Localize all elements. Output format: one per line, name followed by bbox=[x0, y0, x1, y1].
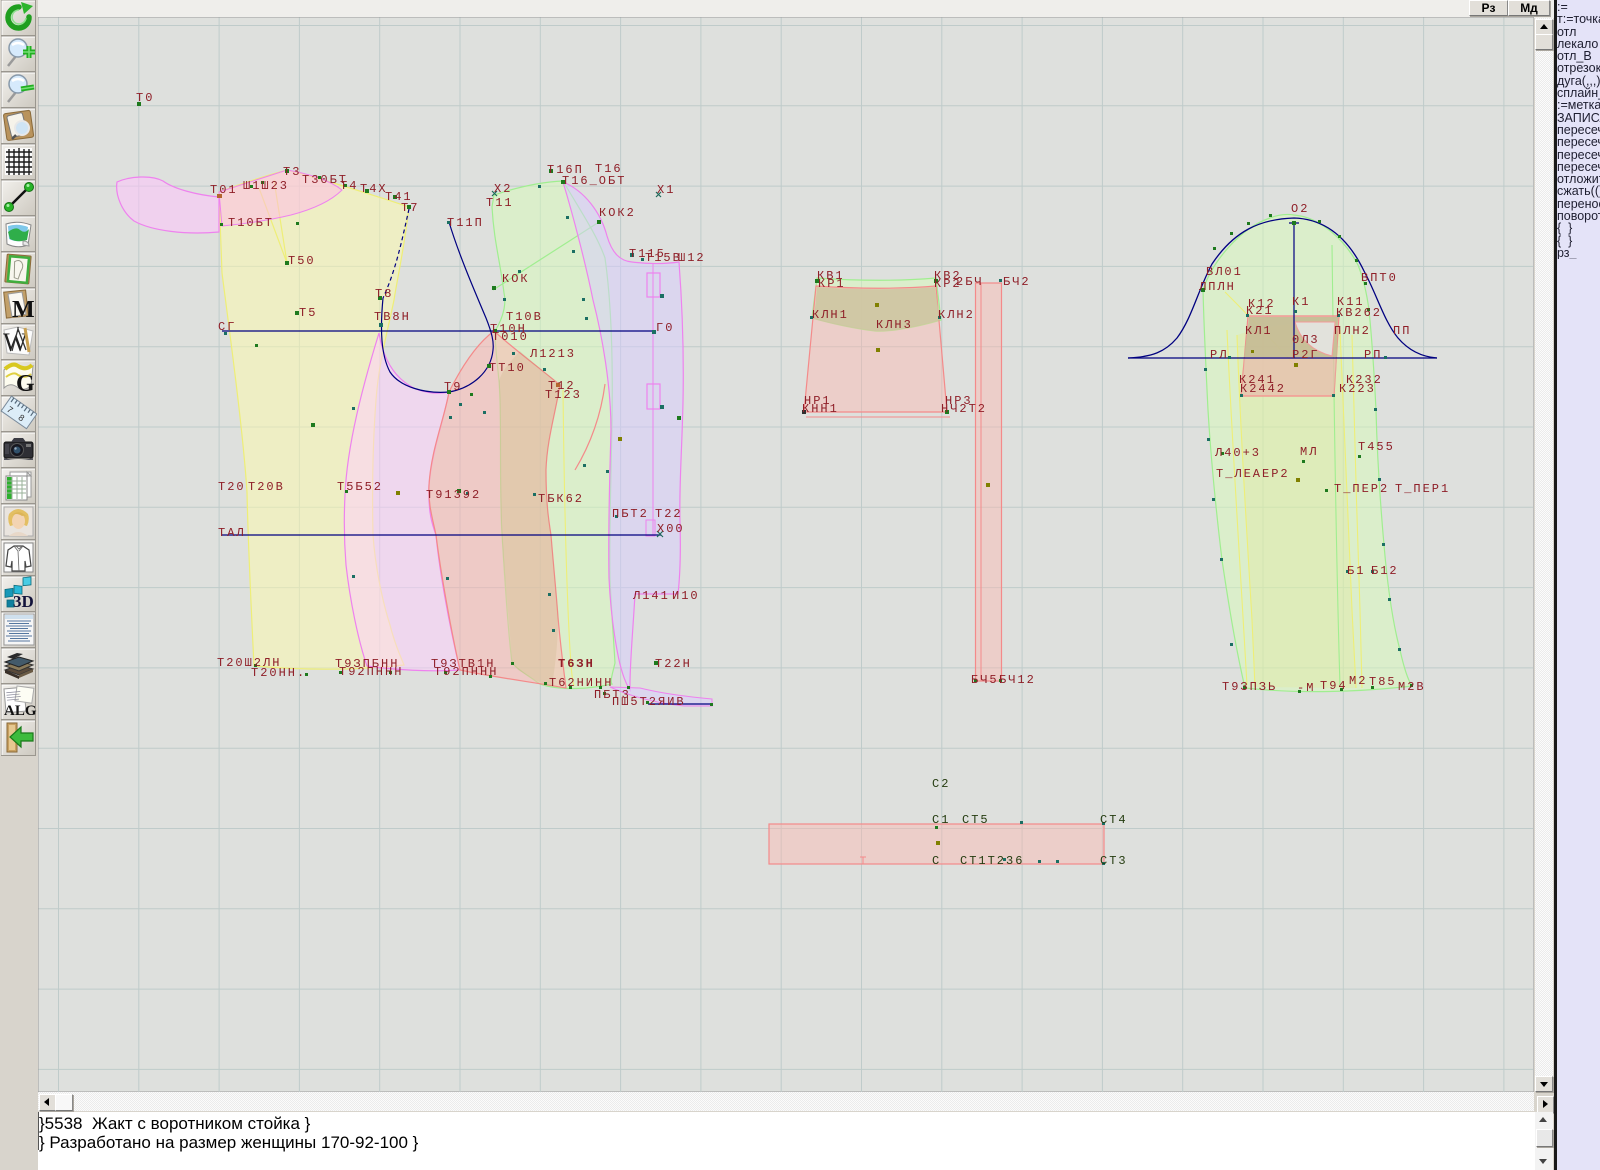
svg-text:Л40+3: Л40+3 bbox=[1214, 446, 1261, 460]
svg-text:Б1: Б1 bbox=[1347, 564, 1365, 578]
svg-text:Т_ПЕР2: Т_ПЕР2 bbox=[1334, 482, 1389, 496]
svg-text:Х00: Х00 bbox=[657, 522, 685, 536]
svg-text:Т92ПННН: Т92ПННН bbox=[339, 665, 403, 679]
svg-text:Т11П: Т11П bbox=[447, 216, 484, 230]
svg-text:О2: О2 bbox=[1291, 202, 1309, 216]
svg-text:Т8: Т8 bbox=[375, 287, 393, 301]
svg-text:Т20В: Т20В bbox=[248, 480, 285, 494]
svg-text:К2442: К2442 bbox=[1240, 382, 1286, 396]
svg-text:М2: М2 bbox=[1349, 674, 1367, 688]
svg-text:КЛ1: КЛ1 bbox=[1245, 324, 1273, 338]
svg-text:Т6ЗН: Т6ЗН bbox=[558, 657, 595, 671]
svg-text:Т11: Т11 bbox=[486, 196, 514, 210]
svg-text:ПБТ2: ПБТ2 bbox=[612, 507, 649, 521]
svg-text:Т7: Т7 bbox=[401, 201, 419, 215]
svg-text:К21: К21 bbox=[1246, 304, 1274, 318]
svg-text:МЛ: МЛ bbox=[1300, 445, 1318, 459]
svg-text:Т010: Т010 bbox=[492, 330, 529, 344]
svg-text:КЛН2: КЛН2 bbox=[938, 308, 975, 322]
svg-text:Л1213: Л1213 bbox=[529, 347, 576, 361]
svg-text:КЛН3: КЛН3 bbox=[876, 318, 913, 332]
svg-text:Т01: Т01 bbox=[210, 183, 238, 197]
svg-text:С: С bbox=[932, 854, 941, 868]
svg-text:КОК: КОК bbox=[502, 272, 530, 286]
svg-text:Ш1Ш23: Ш1Ш23 bbox=[243, 179, 289, 193]
svg-text:КОК2: КОК2 bbox=[599, 206, 636, 220]
svg-text:СТ4: СТ4 bbox=[1100, 813, 1128, 827]
svg-text:Т85: Т85 bbox=[1369, 675, 1397, 689]
svg-text:РП: РП bbox=[1364, 348, 1382, 362]
svg-text:БЧ12: БЧ12 bbox=[999, 673, 1036, 687]
svg-text:С2: С2 bbox=[932, 777, 950, 791]
svg-text:К1: К1 bbox=[1292, 295, 1310, 309]
svg-text:Г0: Г0 bbox=[656, 321, 674, 335]
svg-text:Т455: Т455 bbox=[1358, 440, 1395, 454]
svg-text:М2В: М2В bbox=[1398, 680, 1426, 694]
svg-text:СТ3: СТ3 bbox=[1100, 854, 1128, 868]
svg-text:-М: -М bbox=[1297, 681, 1315, 695]
svg-text:0Л3: 0Л3 bbox=[1292, 333, 1320, 347]
svg-text:Т16_ОБТ: Т16_ОБТ bbox=[562, 174, 626, 188]
svg-text:M: M bbox=[12, 297, 35, 323]
svg-text:НЧ2Т2: НЧ2Т2 bbox=[941, 402, 987, 416]
svg-text:3D: 3D bbox=[13, 592, 34, 611]
svg-text:2БЧ: 2БЧ bbox=[956, 275, 984, 289]
svg-text:Т123: Т123 bbox=[545, 388, 582, 402]
svg-text:И10: И10 bbox=[672, 589, 700, 603]
svg-text:Т22Н: Т22Н bbox=[655, 657, 692, 671]
svg-text:ПЛН2: ПЛН2 bbox=[1334, 324, 1371, 338]
svg-text:ПШ5Т2ЯИВ: ПШ5Т2ЯИВ bbox=[612, 695, 686, 709]
svg-text:БЧ5: БЧ5 bbox=[971, 673, 999, 687]
svg-text:Л141: Л141 bbox=[632, 589, 670, 603]
svg-text:Т5: Т5 bbox=[299, 306, 317, 320]
svg-text:ALG: ALG bbox=[4, 703, 37, 719]
svg-text:ПП: ПП bbox=[1393, 324, 1411, 338]
svg-text:Т20: Т20 bbox=[218, 480, 246, 494]
svg-text:Т91392: Т91392 bbox=[426, 488, 481, 502]
svg-text:С1: С1 bbox=[932, 813, 950, 827]
svg-text:Т4Х: Т4Х bbox=[360, 182, 388, 196]
svg-text:КР1: КР1 bbox=[818, 277, 846, 291]
svg-text:КЛН1: КЛН1 bbox=[812, 308, 849, 322]
svg-text:Ш12: Ш12 bbox=[678, 251, 706, 265]
svg-text:ЛПЛН: ЛПЛН bbox=[1198, 280, 1236, 294]
svg-text:Т15В: Т15В bbox=[645, 251, 682, 265]
svg-text:Т10БТ: Т10БТ bbox=[228, 216, 274, 230]
svg-text:Т94: Т94 bbox=[1320, 679, 1348, 693]
svg-text:СГ: СГ bbox=[218, 320, 236, 334]
svg-text:Т9ЗПЗЬ: Т9ЗПЗЬ bbox=[1222, 680, 1277, 694]
svg-text:БЧ2: БЧ2 bbox=[1003, 275, 1031, 289]
svg-text:G: G bbox=[16, 371, 35, 397]
svg-text:ВПТ0: ВПТ0 bbox=[1361, 271, 1398, 285]
svg-text:Х1: Х1 bbox=[657, 183, 675, 197]
svg-text:Т9: Т9 bbox=[444, 380, 462, 394]
svg-text:Р2Г: Р2Г bbox=[1292, 348, 1320, 362]
svg-text:ТТ10: ТТ10 bbox=[489, 361, 526, 375]
svg-text:Т20НН.: Т20НН. bbox=[251, 666, 306, 680]
svg-text:Б12: Б12 bbox=[1371, 564, 1399, 578]
svg-text:Т3: Т3 bbox=[283, 165, 301, 179]
svg-text:Т92ПННН: Т92ПННН bbox=[434, 665, 498, 679]
svg-text:РЛ: РЛ bbox=[1210, 348, 1228, 362]
svg-text:Т22: Т22 bbox=[655, 507, 683, 521]
svg-text:СТ5: СТ5 bbox=[962, 813, 990, 827]
svg-text:К223: К223 bbox=[1339, 382, 1376, 396]
svg-text:ТАЛ: ТАЛ bbox=[218, 526, 246, 540]
svg-text:Т50: Т50 bbox=[288, 254, 316, 268]
svg-text:Т5Б52: Т5Б52 bbox=[337, 480, 383, 494]
svg-text:Т_ЛЕАЕР2: Т_ЛЕАЕР2 bbox=[1216, 467, 1290, 481]
svg-text:ТБК62: ТБК62 bbox=[538, 492, 584, 506]
svg-text:КНН1: КНН1 bbox=[802, 402, 839, 416]
svg-text:Т4: Т4 bbox=[340, 179, 358, 193]
svg-text:Х2: Х2 bbox=[494, 182, 512, 196]
svg-text:КВ262: КВ262 bbox=[1336, 306, 1382, 320]
svg-text:СТ1Т236: СТ1Т236 bbox=[960, 854, 1024, 868]
svg-text:Т_ПЕР1: Т_ПЕР1 bbox=[1395, 482, 1450, 496]
svg-text:ТВ8Н: ТВ8Н bbox=[374, 310, 411, 324]
svg-text:Т0: Т0 bbox=[136, 91, 154, 105]
svg-text:ВЛ01: ВЛ01 bbox=[1206, 265, 1243, 279]
